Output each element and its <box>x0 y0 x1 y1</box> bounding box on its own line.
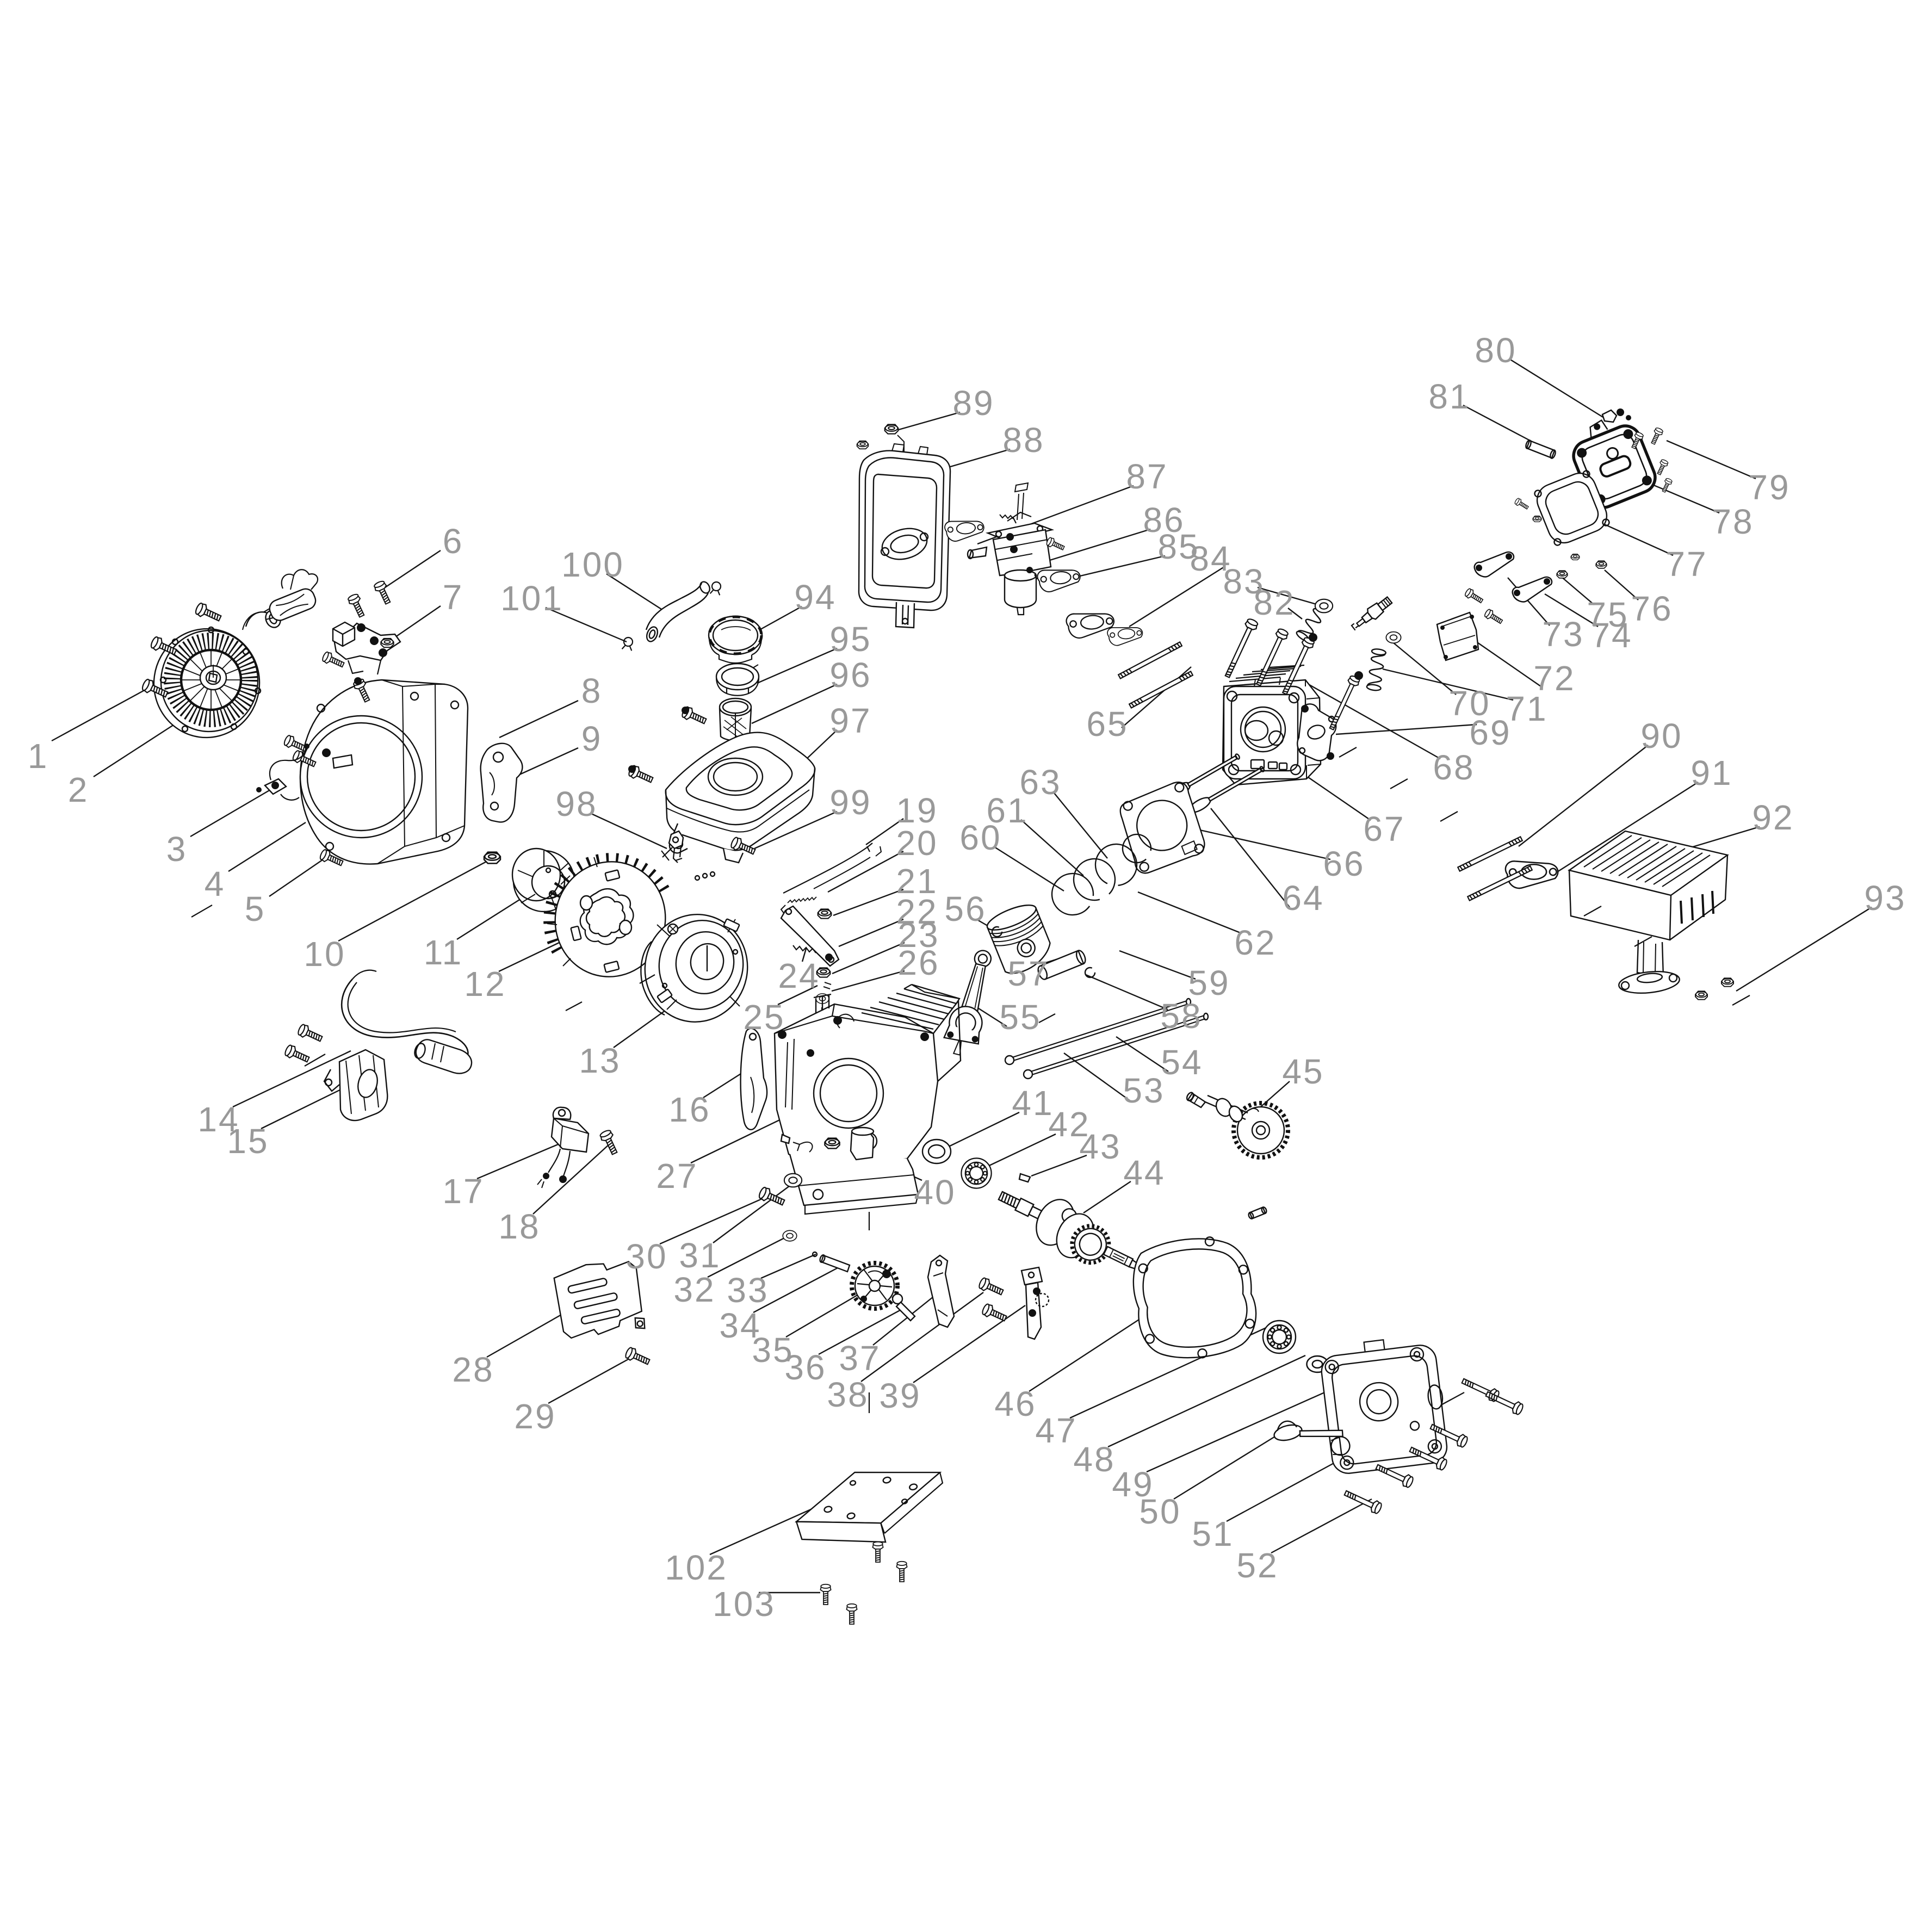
svg-text:2: 2 <box>68 770 89 809</box>
svg-text:28: 28 <box>452 1350 494 1389</box>
svg-text:18: 18 <box>498 1207 540 1246</box>
svg-text:72: 72 <box>1533 659 1575 698</box>
svg-text:65: 65 <box>1086 704 1128 744</box>
svg-text:73: 73 <box>1542 615 1584 654</box>
svg-text:46: 46 <box>994 1384 1036 1423</box>
svg-text:80: 80 <box>1475 331 1516 370</box>
svg-text:62: 62 <box>1234 923 1276 962</box>
svg-text:11: 11 <box>424 933 463 972</box>
svg-text:10: 10 <box>304 934 345 974</box>
svg-text:59: 59 <box>1188 963 1230 1002</box>
svg-text:78: 78 <box>1712 502 1754 541</box>
svg-text:44: 44 <box>1123 1153 1165 1192</box>
svg-text:54: 54 <box>1161 1043 1203 1082</box>
svg-text:79: 79 <box>1748 468 1790 507</box>
svg-text:8: 8 <box>581 671 603 710</box>
svg-text:90: 90 <box>1640 716 1682 756</box>
svg-text:17: 17 <box>442 1172 484 1211</box>
svg-text:88: 88 <box>1002 420 1044 460</box>
svg-text:41: 41 <box>1012 1083 1054 1123</box>
svg-text:29: 29 <box>514 1397 556 1436</box>
svg-text:9: 9 <box>581 719 603 758</box>
svg-text:55: 55 <box>999 998 1041 1037</box>
svg-text:70: 70 <box>1448 684 1490 723</box>
svg-text:92: 92 <box>1752 798 1794 837</box>
svg-text:95: 95 <box>829 620 871 659</box>
svg-text:87: 87 <box>1126 457 1168 496</box>
svg-text:16: 16 <box>668 1090 710 1129</box>
svg-text:4: 4 <box>205 864 226 903</box>
svg-text:99: 99 <box>829 783 871 822</box>
svg-text:38: 38 <box>827 1375 869 1414</box>
svg-text:94: 94 <box>794 578 836 617</box>
svg-text:53: 53 <box>1123 1071 1165 1110</box>
svg-text:32: 32 <box>673 1270 715 1309</box>
svg-text:30: 30 <box>626 1237 667 1276</box>
svg-text:39: 39 <box>879 1376 921 1415</box>
svg-text:102: 102 <box>665 1548 728 1587</box>
svg-text:43: 43 <box>1079 1127 1121 1166</box>
svg-text:56: 56 <box>944 889 986 928</box>
svg-text:66: 66 <box>1323 844 1365 883</box>
svg-text:40: 40 <box>914 1173 956 1212</box>
svg-text:27: 27 <box>656 1156 698 1196</box>
svg-text:89: 89 <box>952 383 994 423</box>
svg-text:20: 20 <box>896 823 938 863</box>
svg-text:15: 15 <box>227 1122 269 1161</box>
svg-text:52: 52 <box>1236 1546 1278 1585</box>
svg-text:97: 97 <box>829 701 871 740</box>
svg-text:81: 81 <box>1428 377 1470 416</box>
svg-text:100: 100 <box>561 545 624 584</box>
svg-text:63: 63 <box>1019 763 1061 802</box>
svg-text:3: 3 <box>166 829 188 869</box>
svg-text:50: 50 <box>1139 1492 1181 1531</box>
svg-text:64: 64 <box>1282 878 1324 918</box>
svg-text:75: 75 <box>1587 595 1628 634</box>
svg-text:93: 93 <box>1864 878 1906 918</box>
svg-text:6: 6 <box>443 522 464 561</box>
svg-text:98: 98 <box>555 784 597 823</box>
svg-text:45: 45 <box>1282 1052 1324 1091</box>
svg-text:33: 33 <box>727 1271 769 1310</box>
svg-text:36: 36 <box>784 1348 826 1387</box>
svg-text:76: 76 <box>1631 589 1673 628</box>
svg-text:86: 86 <box>1143 500 1185 540</box>
svg-text:7: 7 <box>443 578 464 617</box>
svg-text:91: 91 <box>1691 753 1732 792</box>
svg-text:26: 26 <box>897 943 939 982</box>
svg-text:37: 37 <box>839 1339 881 1378</box>
svg-text:24: 24 <box>778 956 820 995</box>
svg-text:57: 57 <box>1007 954 1049 993</box>
svg-text:103: 103 <box>713 1584 776 1624</box>
svg-text:67: 67 <box>1363 809 1405 849</box>
svg-text:47: 47 <box>1035 1411 1077 1450</box>
svg-text:101: 101 <box>500 579 563 618</box>
svg-text:12: 12 <box>464 964 506 1004</box>
svg-text:25: 25 <box>743 998 785 1037</box>
svg-text:48: 48 <box>1073 1440 1115 1479</box>
svg-text:51: 51 <box>1192 1514 1234 1553</box>
svg-text:13: 13 <box>579 1041 621 1080</box>
svg-text:96: 96 <box>829 655 871 695</box>
svg-text:1: 1 <box>28 736 49 776</box>
svg-text:31: 31 <box>679 1236 721 1275</box>
svg-text:68: 68 <box>1433 748 1475 787</box>
svg-text:5: 5 <box>245 889 266 928</box>
svg-text:77: 77 <box>1665 544 1707 584</box>
